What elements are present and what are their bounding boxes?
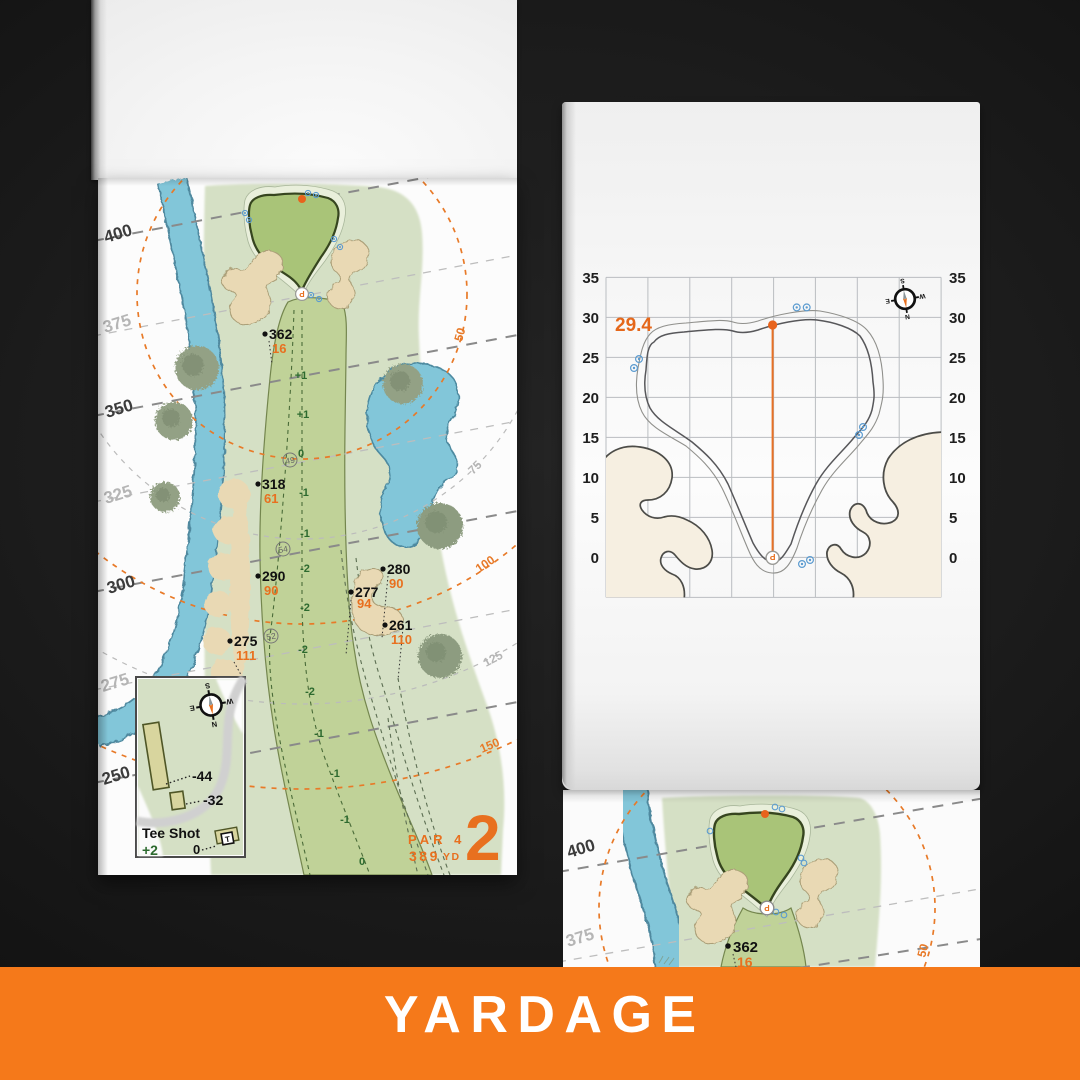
svg-text:-32: -32 bbox=[203, 792, 223, 808]
svg-text:49: 49 bbox=[285, 455, 296, 467]
svg-text:0: 0 bbox=[591, 550, 599, 567]
svg-text:400: 400 bbox=[565, 835, 598, 861]
svg-text:389: 389 bbox=[409, 848, 440, 864]
svg-text:YD: YD bbox=[443, 851, 461, 863]
svg-text:-2: -2 bbox=[300, 563, 310, 575]
svg-text:25: 25 bbox=[949, 350, 966, 367]
svg-text:20: 20 bbox=[582, 390, 599, 407]
svg-text:52: 52 bbox=[266, 631, 277, 643]
svg-text:50: 50 bbox=[914, 942, 931, 959]
svg-text:375: 375 bbox=[564, 924, 597, 950]
svg-text:290: 290 bbox=[262, 568, 286, 584]
svg-text:0: 0 bbox=[193, 842, 200, 857]
svg-text:94: 94 bbox=[357, 596, 372, 611]
svg-text:35: 35 bbox=[949, 270, 966, 287]
svg-text:-2: -2 bbox=[298, 644, 308, 656]
svg-text:N: N bbox=[904, 312, 910, 320]
svg-text:61: 61 bbox=[264, 491, 278, 506]
svg-text:275: 275 bbox=[234, 633, 258, 649]
svg-text:-1: -1 bbox=[299, 487, 309, 499]
svg-text:111: 111 bbox=[236, 648, 256, 663]
svg-text:Tee Shot: Tee Shot bbox=[142, 825, 200, 841]
svg-text:5: 5 bbox=[591, 510, 599, 527]
svg-text:15: 15 bbox=[949, 430, 966, 447]
svg-text:10: 10 bbox=[949, 470, 966, 487]
svg-text:-1: -1 bbox=[340, 814, 350, 826]
svg-text:100: 100 bbox=[473, 553, 498, 576]
svg-text:S: S bbox=[899, 277, 905, 285]
svg-text:110: 110 bbox=[391, 632, 412, 647]
svg-text:16: 16 bbox=[272, 341, 286, 356]
svg-text:90: 90 bbox=[389, 576, 403, 591]
svg-text:0: 0 bbox=[298, 448, 304, 460]
svg-text:29.4: 29.4 bbox=[615, 315, 652, 336]
svg-text:-2: -2 bbox=[300, 602, 310, 614]
svg-text:280: 280 bbox=[387, 561, 411, 577]
svg-text:50: 50 bbox=[451, 326, 468, 343]
svg-text:2: 2 bbox=[465, 802, 501, 874]
svg-text:-1: -1 bbox=[300, 528, 310, 540]
svg-text:-1: -1 bbox=[330, 768, 340, 780]
svg-text:W: W bbox=[918, 292, 926, 300]
svg-text:54: 54 bbox=[278, 544, 289, 556]
svg-text:P: P bbox=[769, 552, 775, 562]
svg-text:20: 20 bbox=[949, 390, 966, 407]
svg-text:0: 0 bbox=[359, 856, 365, 868]
svg-text:10: 10 bbox=[582, 470, 599, 487]
svg-text:E: E bbox=[884, 297, 890, 305]
svg-text:-44: -44 bbox=[192, 768, 212, 784]
svg-text:-2: -2 bbox=[305, 686, 315, 698]
svg-text:90: 90 bbox=[264, 583, 278, 598]
svg-text:-1: -1 bbox=[314, 728, 324, 740]
svg-text:16: 16 bbox=[737, 954, 753, 967]
svg-text:125: 125 bbox=[481, 648, 506, 670]
svg-text:+2: +2 bbox=[142, 842, 158, 858]
svg-text:25: 25 bbox=[582, 350, 599, 367]
svg-text:+1: +1 bbox=[295, 370, 308, 382]
svg-text:PAR 4: PAR 4 bbox=[408, 832, 465, 847]
svg-text:P: P bbox=[764, 903, 770, 912]
svg-text:+1: +1 bbox=[297, 409, 310, 421]
svg-text:15: 15 bbox=[582, 430, 599, 447]
svg-text:5: 5 bbox=[949, 510, 957, 527]
svg-text:300: 300 bbox=[105, 571, 138, 597]
svg-text:30: 30 bbox=[949, 310, 966, 327]
svg-text:35: 35 bbox=[582, 270, 599, 287]
svg-text:362: 362 bbox=[269, 326, 293, 342]
svg-text:0: 0 bbox=[949, 550, 957, 567]
svg-text:P: P bbox=[299, 289, 305, 298]
svg-text:261: 261 bbox=[389, 617, 413, 633]
svg-text:318: 318 bbox=[262, 476, 286, 492]
svg-text:30: 30 bbox=[582, 310, 599, 327]
